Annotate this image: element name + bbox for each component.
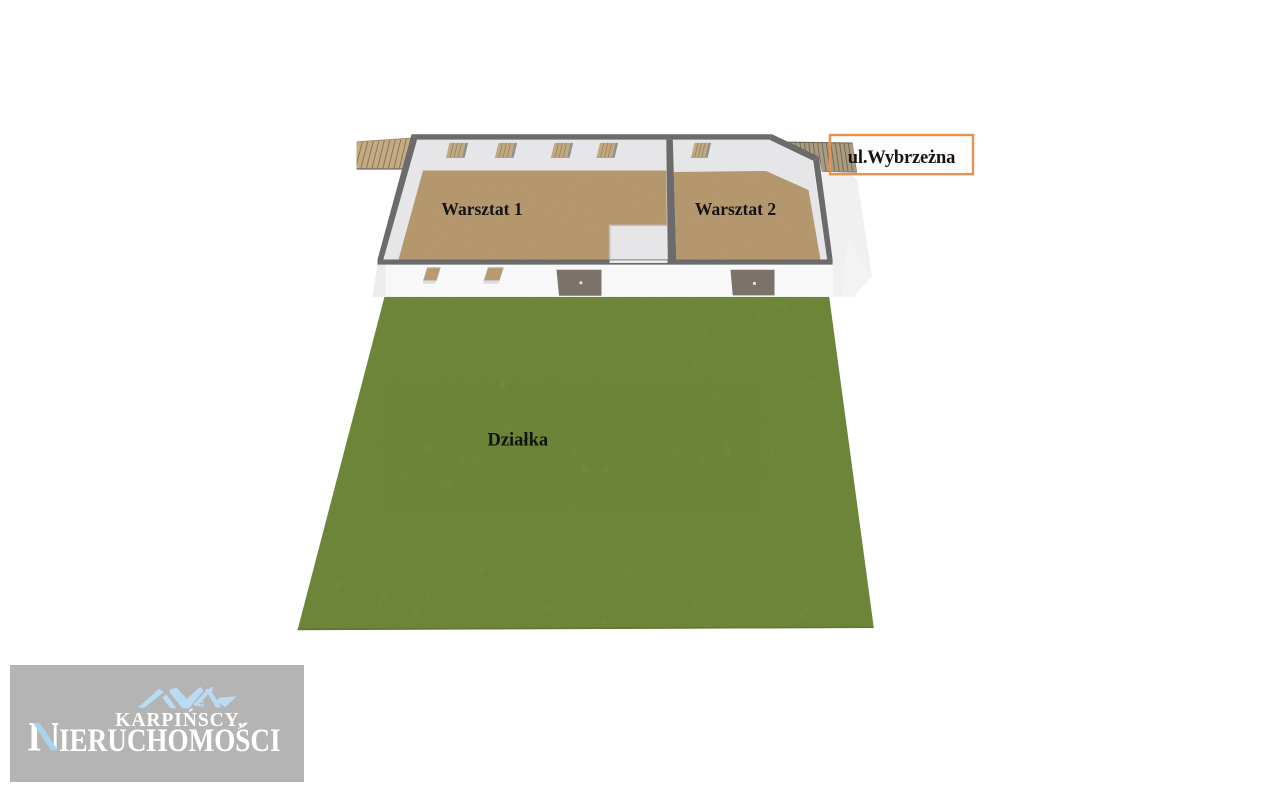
- svg-text:Warsztat 2: Warsztat 2: [695, 199, 776, 219]
- svg-text:Działka: Działka: [487, 430, 548, 450]
- svg-text:IERUCHOMOŚCI: IERUCHOMOŚCI: [59, 723, 281, 759]
- svg-text:Warsztat 1: Warsztat 1: [441, 199, 522, 219]
- svg-text:ul.Wybrzeżna: ul.Wybrzeżna: [848, 148, 955, 168]
